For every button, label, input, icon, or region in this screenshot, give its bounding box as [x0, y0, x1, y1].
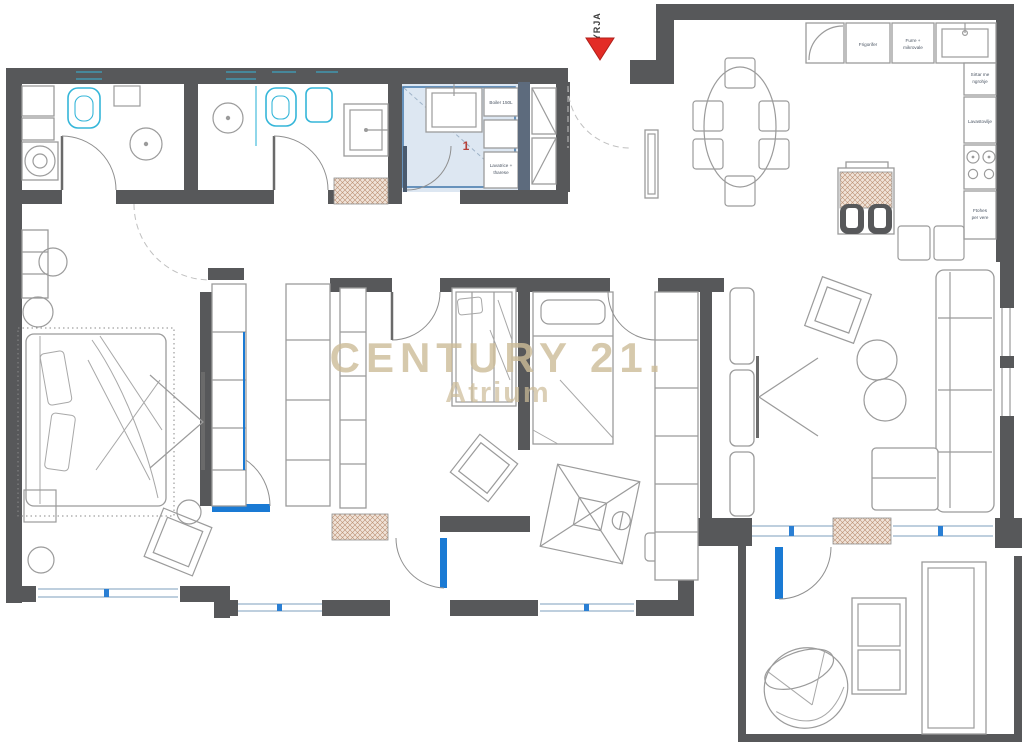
balcony-door [775, 547, 783, 599]
radiator [645, 130, 658, 198]
dining-area [693, 58, 789, 206]
shelf-unit [340, 288, 366, 508]
dining-chair [725, 58, 755, 88]
floor-plan-page: Boiler 150L Lavatrice + tharese 1 [0, 0, 1024, 749]
desk [450, 434, 517, 501]
drawer-label-line1: Sirtar me [971, 72, 990, 77]
boiler-label: Boiler 150L [489, 100, 513, 105]
double-bed [26, 334, 166, 506]
stool [28, 547, 54, 573]
living-room [730, 270, 994, 516]
balcony-door [440, 538, 447, 588]
tv-shelf [730, 288, 754, 364]
sofa-chaise [872, 448, 938, 510]
watermark-line1: CENTURY 21. [330, 334, 667, 381]
egg-chair [753, 636, 859, 740]
pouf [898, 226, 930, 260]
utility-door-leaf [403, 146, 407, 192]
bedroom-children [340, 288, 518, 588]
coffee-table [857, 340, 897, 380]
tv-shelf [730, 452, 754, 516]
hanging-chair [540, 464, 640, 564]
hall-closet [532, 88, 556, 184]
side-table [177, 500, 201, 524]
lounge-chair [144, 508, 212, 576]
plant [23, 297, 53, 327]
tv-viewing-cone [759, 358, 818, 436]
entry-arrow-icon [586, 38, 614, 60]
wardrobe [22, 230, 48, 298]
wardrobe [286, 284, 330, 506]
balcony [738, 545, 1022, 742]
oven-label-line1: Furre + [906, 38, 921, 43]
brand-watermark: CENTURY 21. Atrium [330, 334, 667, 409]
pouf [934, 226, 964, 260]
sofa [936, 270, 994, 512]
dining-chair [693, 101, 723, 131]
balcony-bench [922, 562, 986, 734]
watermark-line2: Atrium [445, 377, 550, 409]
room-number: 1 [463, 139, 470, 153]
bathroom-2 [213, 86, 388, 190]
toilet [266, 88, 296, 126]
washer-dryer-label-line2: tharese [493, 170, 509, 175]
drawer-label-line2: ngrohje [972, 79, 988, 84]
washbasin [306, 88, 332, 122]
floor-plan-svg: Boiler 150L Lavatrice + tharese 1 [0, 0, 1024, 749]
bathroom-1 [22, 86, 162, 190]
wine-label-line2: per vere [972, 215, 989, 220]
coffee-table [864, 379, 906, 421]
toilet [68, 88, 100, 128]
oven-microwave [892, 23, 934, 63]
wine-label-line1: Ftohes [973, 208, 988, 213]
dining-chair [725, 176, 755, 206]
fridge-label: Frigorifer [859, 42, 878, 47]
dining-chair [759, 139, 789, 169]
utility-room: Boiler 150L Lavatrice + tharese 1 [398, 82, 520, 192]
wardrobe [212, 284, 246, 506]
kitchen-island [838, 162, 964, 260]
tv-shelf [730, 370, 754, 446]
wardrobe-hall [212, 284, 330, 506]
washer-dryer-label-line1: Lavatrice + [490, 163, 513, 168]
armchair [805, 277, 872, 344]
oven-label-line2: mikrovale [903, 45, 923, 50]
dishwasher-label: Lavastovilje [968, 119, 992, 124]
